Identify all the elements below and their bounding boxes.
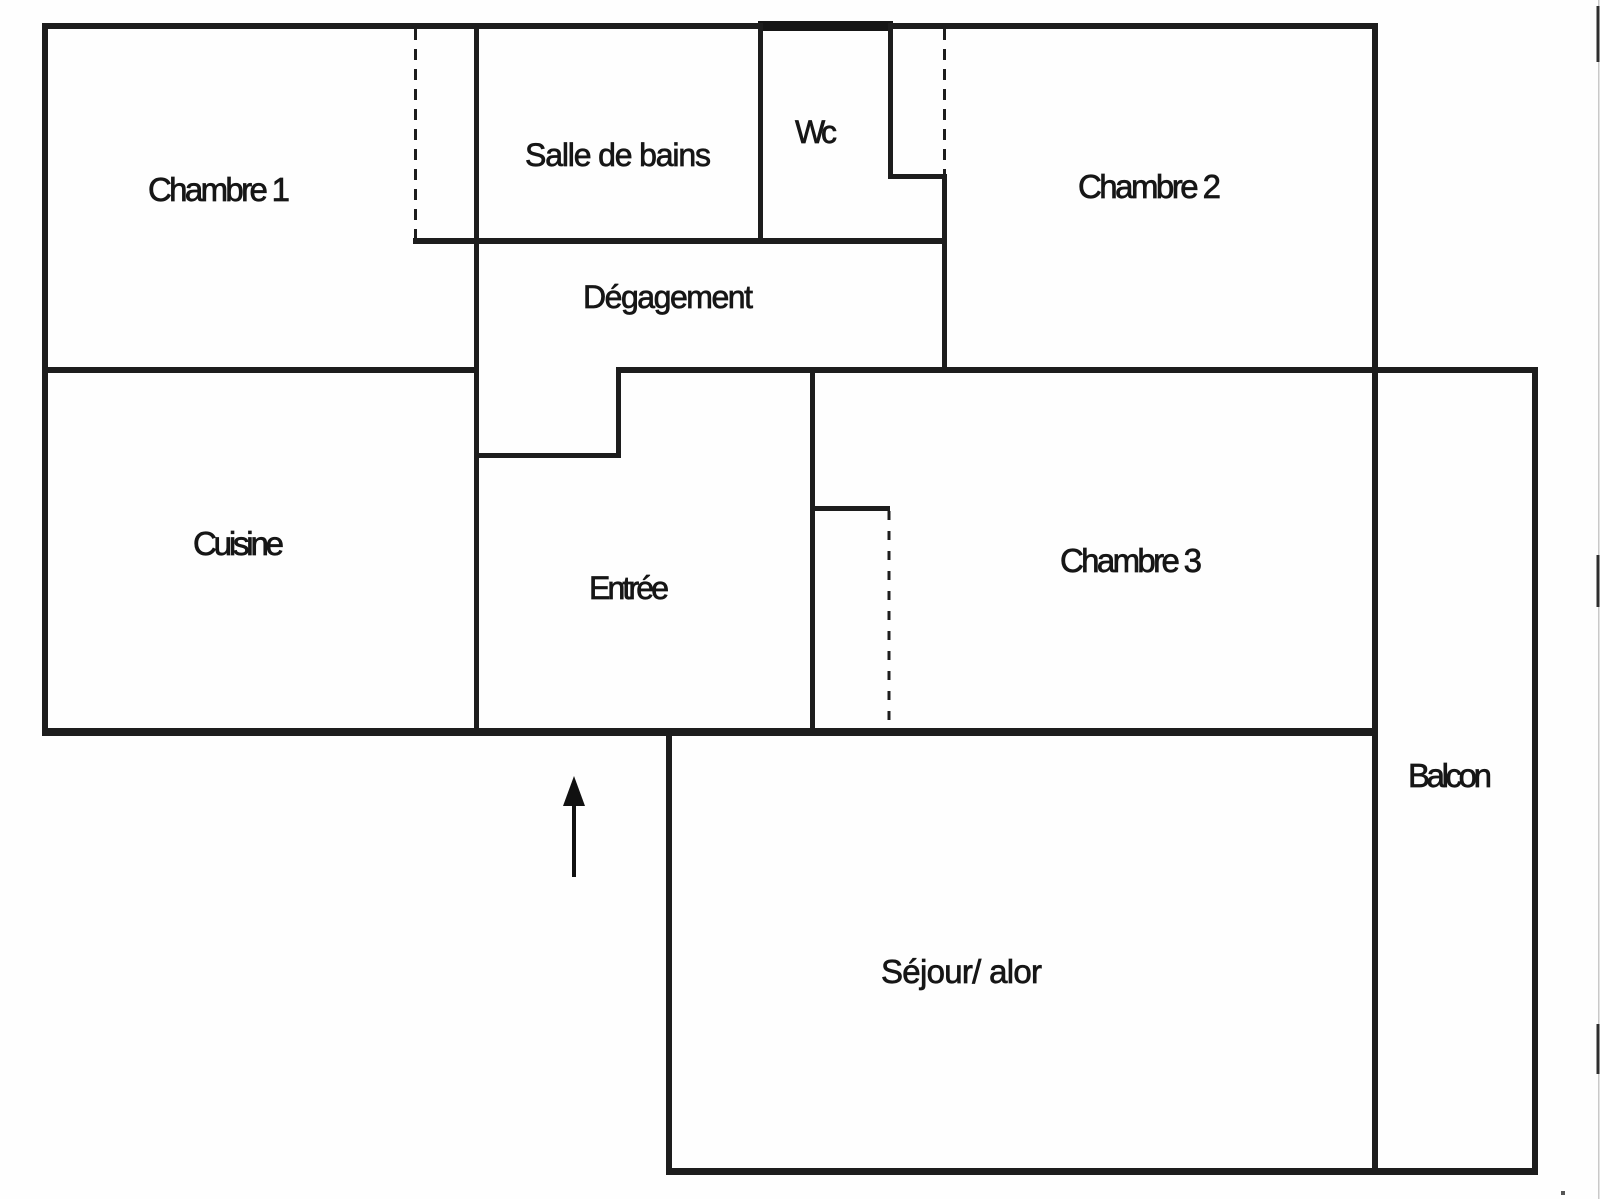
svg-text:Séjour/ alor: Séjour/ alor [881, 953, 1042, 990]
svg-text:Balcon: Balcon [1408, 757, 1492, 794]
svg-text:Chambre 2: Chambre 2 [1078, 168, 1221, 205]
svg-text:Chambre 3: Chambre 3 [1060, 542, 1202, 579]
svg-text:Salle de bains: Salle de bains [525, 137, 711, 173]
svg-text:Chambre 1: Chambre 1 [148, 171, 290, 208]
svg-text:Wc: Wc [795, 114, 837, 150]
svg-text:Entrée: Entrée [589, 570, 669, 606]
svg-text:Dégagement: Dégagement [583, 279, 753, 315]
svg-text:Cuisine: Cuisine [193, 525, 284, 562]
